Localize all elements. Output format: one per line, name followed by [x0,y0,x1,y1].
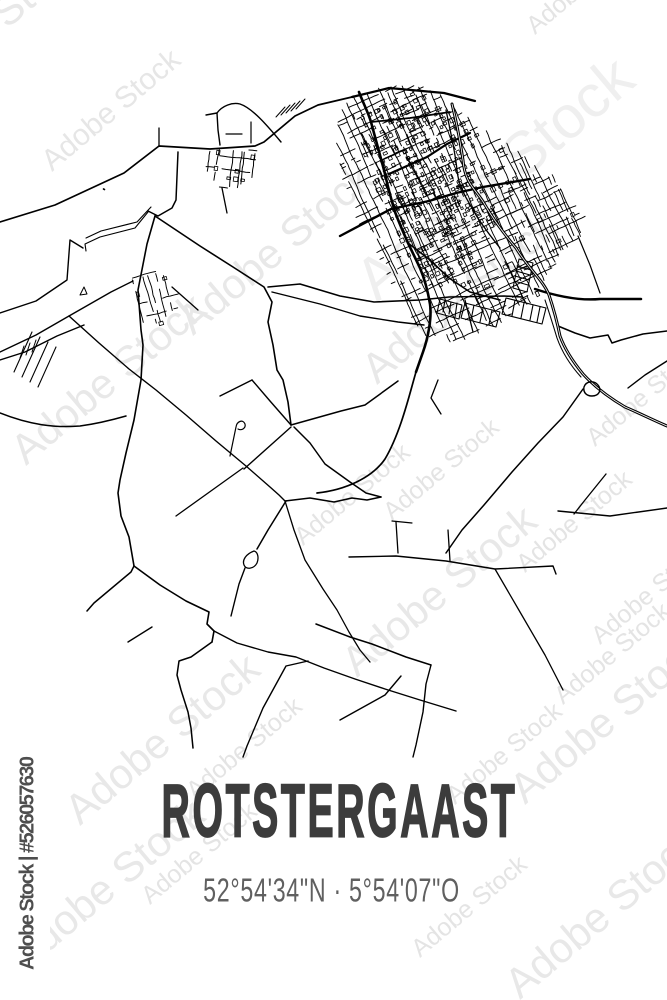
svg-text:52°54'34"N · 5°54'07"O: 52°54'34"N · 5°54'07"O [203,873,460,910]
svg-text:Adobe Stock | #526057630: Adobe Stock | #526057630 [17,756,39,970]
svg-text:ROTSTERGAAST: ROTSTERGAAST [162,769,518,853]
